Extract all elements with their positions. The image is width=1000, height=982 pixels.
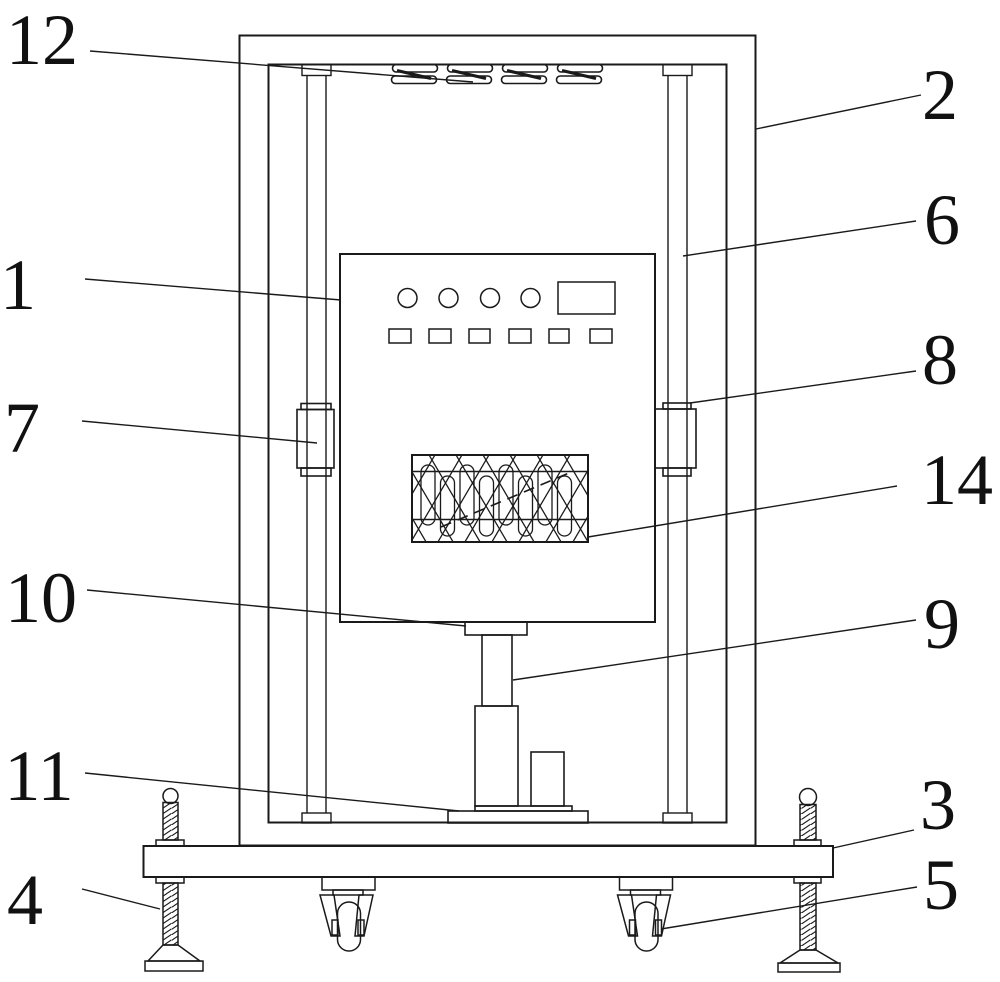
leader-line-8 bbox=[690, 371, 916, 403]
patent-figure: 12 2 6 1 8 7 14 10 9 11 3 5 4 bbox=[0, 0, 1000, 982]
outer-frame bbox=[240, 36, 756, 846]
indicator-light-icon bbox=[521, 289, 540, 308]
right-guide-rod bbox=[663, 65, 692, 824]
caster-mount-plate bbox=[620, 877, 673, 890]
outer-frame-rect bbox=[240, 36, 756, 846]
foot-pad-base bbox=[145, 961, 203, 971]
panel-button bbox=[509, 329, 531, 343]
leader-line-7 bbox=[82, 421, 317, 443]
leader-line-2 bbox=[756, 95, 921, 129]
spring-icon bbox=[502, 65, 548, 84]
panel-button bbox=[469, 329, 490, 343]
label-7: 7 bbox=[4, 388, 40, 468]
hatched-coil-block bbox=[412, 455, 588, 542]
leader-line-9 bbox=[513, 620, 916, 680]
indicator-light-icon bbox=[398, 289, 417, 308]
jack-cylinder bbox=[475, 706, 518, 806]
base-plate bbox=[144, 846, 834, 877]
panel-button bbox=[590, 329, 612, 343]
foot-ball-knob bbox=[163, 789, 178, 804]
leader-line-1 bbox=[85, 279, 341, 300]
leader-line-14 bbox=[588, 486, 897, 537]
label-2: 2 bbox=[922, 55, 958, 135]
panel-button bbox=[389, 329, 411, 343]
panel-button bbox=[429, 329, 451, 343]
left-caster-wheel bbox=[320, 877, 375, 951]
leader-line-3 bbox=[833, 830, 914, 848]
foot-ball-knob bbox=[800, 789, 817, 806]
jack-base-plate-lower bbox=[448, 811, 588, 823]
label-10: 10 bbox=[5, 558, 77, 638]
inner-frame-rect bbox=[269, 65, 727, 823]
label-11: 11 bbox=[4, 736, 73, 816]
diagram-canvas: 12 2 6 1 8 7 14 10 9 11 3 5 4 bbox=[0, 0, 1000, 982]
right-caster-wheel bbox=[618, 877, 673, 951]
foot-pad-cone bbox=[780, 950, 838, 963]
caster-mount-plate bbox=[322, 877, 375, 890]
control-panel bbox=[340, 254, 655, 622]
rod-top-bracket bbox=[663, 65, 692, 76]
indicator-light-icon bbox=[439, 289, 458, 308]
label-9: 9 bbox=[924, 584, 960, 664]
spring-icon bbox=[557, 65, 603, 84]
display-screen bbox=[558, 282, 615, 314]
jack-pump-box bbox=[531, 752, 564, 806]
jack-top-plate bbox=[465, 622, 527, 635]
left-slider-block bbox=[297, 404, 334, 477]
left-leveling-foot bbox=[145, 789, 203, 972]
label-1: 1 bbox=[0, 245, 36, 325]
threaded-shaft bbox=[800, 883, 816, 950]
label-6: 6 bbox=[924, 180, 960, 260]
label-3: 3 bbox=[920, 765, 956, 845]
jack-assembly bbox=[448, 622, 588, 823]
label-12: 12 bbox=[6, 0, 78, 80]
piston-rod bbox=[482, 635, 512, 706]
right-slider-block bbox=[655, 403, 696, 476]
label-8: 8 bbox=[922, 320, 958, 400]
leader-line-11 bbox=[85, 773, 459, 811]
foot-pad-base bbox=[778, 963, 840, 972]
leader-line-4 bbox=[82, 889, 160, 909]
spring-icon bbox=[392, 65, 438, 84]
crosshatch-fill bbox=[412, 455, 588, 542]
left-guide-rod bbox=[302, 65, 331, 824]
label-14: 14 bbox=[921, 440, 993, 520]
leader-line-12 bbox=[90, 51, 473, 82]
leader-line-10 bbox=[87, 590, 466, 626]
right-leveling-foot bbox=[778, 789, 840, 973]
threaded-shaft bbox=[800, 805, 816, 841]
panel-button bbox=[549, 329, 569, 343]
threaded-shaft bbox=[163, 883, 178, 945]
control-panel-body bbox=[340, 254, 655, 622]
label-5: 5 bbox=[923, 845, 959, 925]
foot-pad-cone bbox=[148, 945, 200, 961]
label-4: 4 bbox=[7, 860, 43, 940]
top-spring-row bbox=[392, 65, 603, 84]
leader-line-6 bbox=[683, 221, 916, 256]
threaded-shaft bbox=[163, 803, 178, 841]
indicator-light-icon bbox=[481, 289, 500, 308]
leader-line-5 bbox=[661, 887, 917, 929]
